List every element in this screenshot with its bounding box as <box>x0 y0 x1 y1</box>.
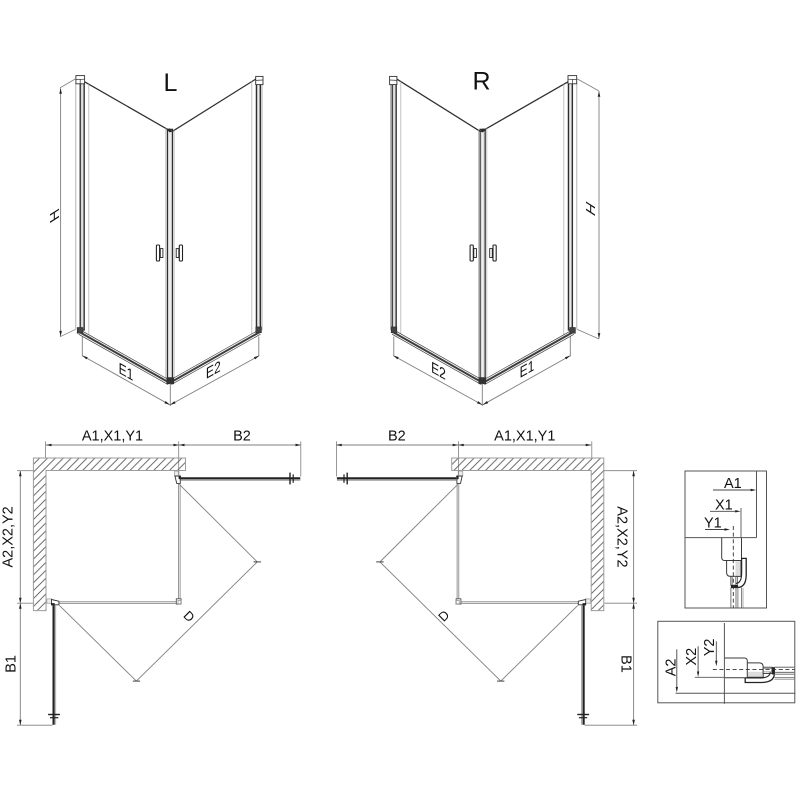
svg-text:B2: B2 <box>233 429 251 445</box>
svg-text:Y1: Y1 <box>704 516 722 532</box>
svg-text:A2,X2,Y2: A2,X2,Y2 <box>614 506 630 567</box>
svg-text:H: H <box>48 205 62 225</box>
svg-text:X2: X2 <box>684 648 700 666</box>
svg-text:A1: A1 <box>724 476 742 492</box>
svg-text:B1: B1 <box>4 655 20 673</box>
svg-text:B1: B1 <box>618 655 634 673</box>
svg-text:R: R <box>472 68 490 96</box>
svg-text:Y2: Y2 <box>702 639 718 657</box>
svg-text:D: D <box>180 608 197 625</box>
svg-text:D: D <box>435 607 452 624</box>
svg-text:X1: X1 <box>715 497 733 513</box>
svg-text:L: L <box>164 69 178 97</box>
svg-text:H: H <box>582 198 596 218</box>
svg-text:B2: B2 <box>388 429 406 445</box>
svg-text:A2: A2 <box>663 659 679 677</box>
svg-text:A1,X1,Y1: A1,X1,Y1 <box>82 429 143 445</box>
svg-text:A2,X2,Y2: A2,X2,Y2 <box>1 506 17 567</box>
svg-text:A1,X1,Y1: A1,X1,Y1 <box>494 429 555 445</box>
